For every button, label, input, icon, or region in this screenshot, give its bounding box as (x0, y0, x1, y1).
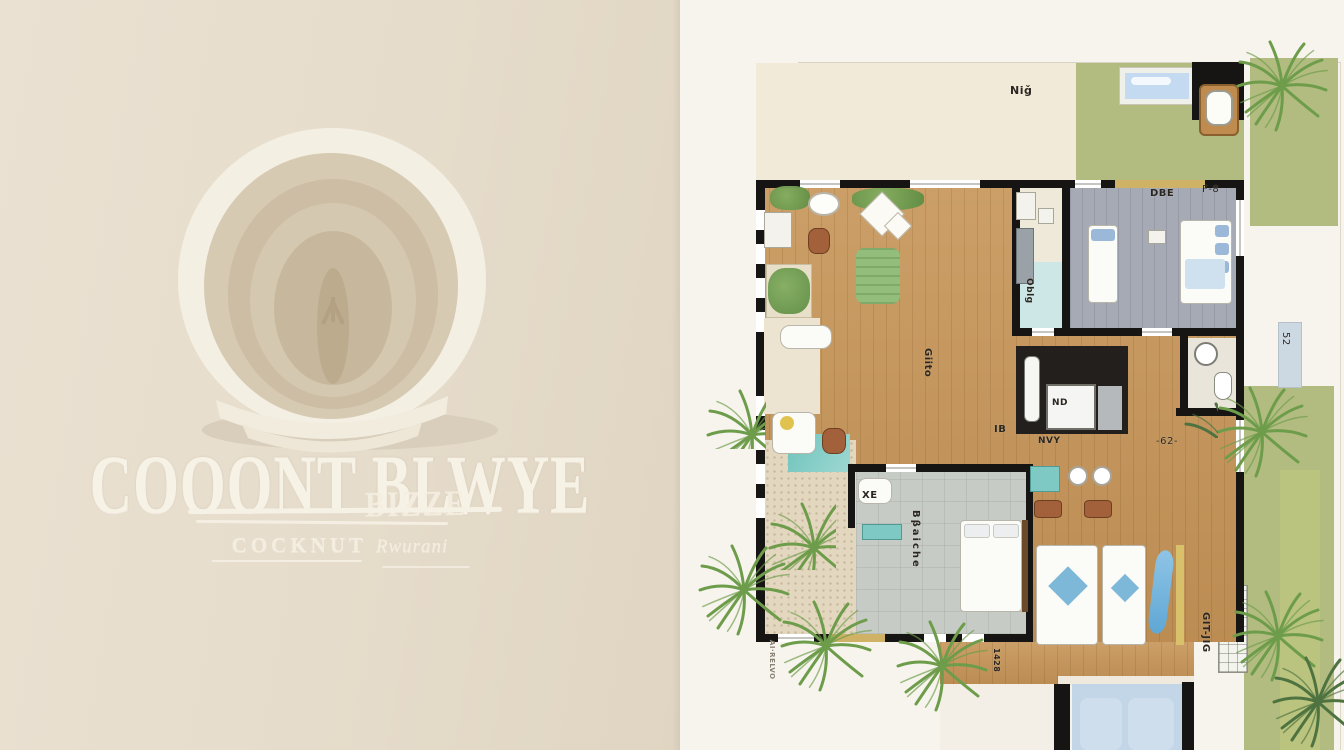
brand-title-fragment: BIZZE (365, 484, 467, 527)
dresser-teal (862, 524, 902, 540)
blue-diamond-motif (1111, 574, 1139, 602)
bed-sw (960, 520, 1022, 612)
oval-table (808, 192, 840, 216)
brand-panel: COOONT BLWYE BIZZE COCKNUT Rwurani (0, 0, 680, 750)
bath-mat (1098, 386, 1122, 430)
round-chair (1068, 466, 1088, 486)
room-label-bedroom-sw: Bβaiche (910, 510, 921, 569)
armchair-brown (822, 428, 846, 454)
pillow-white (964, 524, 990, 538)
brand-subtitle-word2: Rwurani (376, 536, 448, 557)
label-beach: AI·RELVO (768, 640, 776, 680)
nook-chair-brown (1034, 500, 1062, 518)
pillow-white (993, 524, 1019, 538)
brand-subtitle: COCKNUT Rwurani (0, 533, 680, 558)
shower-column-fixture (1024, 356, 1040, 422)
door-kitchen (1032, 328, 1054, 336)
kitchen-counter (1016, 228, 1034, 284)
wall-beach-east (848, 464, 855, 528)
room-label-bedroom-ne-dim: F-8 (1202, 184, 1219, 195)
fridge (1016, 192, 1036, 220)
label-walkway: 52 (1280, 332, 1291, 346)
brand-title: COOONT BLWYE (17, 438, 663, 534)
swimming-pool (1072, 684, 1182, 750)
door-bedroom-sw (886, 464, 916, 472)
sink-fixture (1194, 342, 1218, 366)
terrace-area (756, 63, 1076, 181)
nook-chair-brown (1084, 500, 1112, 518)
bed-se-right (1102, 545, 1146, 645)
subtitle-underline-2 (382, 566, 470, 568)
window-east-1 (1236, 200, 1244, 256)
room-label-living: Giito (922, 348, 933, 377)
pillow-blue (1215, 225, 1229, 237)
bed-ne-right (1180, 220, 1232, 304)
round-chair (1092, 466, 1112, 486)
bed-se-left (1036, 545, 1098, 645)
desk (764, 212, 792, 248)
door-bedroom-ne (1142, 328, 1172, 336)
fern-icon (764, 498, 836, 570)
label-bath-center: IB (994, 424, 1006, 435)
pillow-blue (1091, 229, 1115, 241)
daybed-green (856, 248, 900, 304)
wall-bedroom-sw-north (848, 464, 1032, 472)
bed-guest (772, 412, 816, 454)
palm-tree-icon (892, 616, 1004, 728)
bathtub (780, 325, 832, 349)
pool-step-right (1128, 698, 1174, 750)
palm-tree-icon (1212, 382, 1344, 518)
nightstand (1148, 230, 1166, 244)
throw-blue (1185, 259, 1225, 289)
pool-wall-east (1182, 682, 1194, 750)
headboard (1022, 520, 1028, 612)
wall-bedroom-ne-west (1062, 180, 1070, 332)
coconut-illustration-icon (150, 112, 520, 460)
plant-on-bed-icon (768, 268, 810, 314)
label-armchair: XE (862, 490, 878, 501)
palm-tree-icon (1232, 36, 1344, 160)
garden-pond (1120, 68, 1194, 104)
poster-image: COOONT BLWYE BIZZE COCKNUT Rwurani (0, 0, 1344, 750)
pool-step-left (1080, 698, 1122, 750)
planter-icon (770, 186, 810, 210)
pillow-blue (1215, 243, 1229, 255)
potted-plant-icon (1178, 398, 1218, 438)
room-label-pantry: Oblg (1024, 278, 1034, 304)
window-north-3 (1075, 180, 1101, 188)
sliding-door-north (1112, 180, 1208, 188)
subtitle-underline (212, 560, 362, 562)
room-label-bedroom-ne: DBE (1150, 188, 1174, 199)
blue-diamond-motif (1048, 566, 1088, 606)
palm-tree-icon (776, 596, 908, 728)
room-label-terrace: Niǧ (1010, 84, 1032, 97)
bed-ne-left (1088, 225, 1118, 303)
pillow-yellow (780, 416, 794, 430)
label-patio: GIT-JIG (1200, 612, 1211, 653)
window-north-2 (910, 180, 980, 188)
bush-icon (1268, 652, 1344, 750)
pool-wall-west (1054, 684, 1070, 750)
floor-plan-panel: Niǧ DBE F-8 Oblg Giito IB ND NVY -62- 52… (680, 0, 1344, 750)
armchair-brown (808, 228, 830, 254)
label-bath-mat: NVY (1038, 436, 1061, 446)
window-north-1 (800, 180, 840, 188)
bench-gold (1176, 545, 1184, 645)
label-hallway-dim: -62- (1156, 436, 1178, 447)
label-deck: 1428 (992, 648, 1001, 672)
palm-tree-icon (702, 385, 766, 449)
brand-subtitle-word1: COCKNUT (232, 533, 367, 557)
nook-table-teal (1030, 466, 1060, 492)
label-bath-tray: ND (1052, 398, 1068, 408)
appliance (1038, 208, 1054, 224)
